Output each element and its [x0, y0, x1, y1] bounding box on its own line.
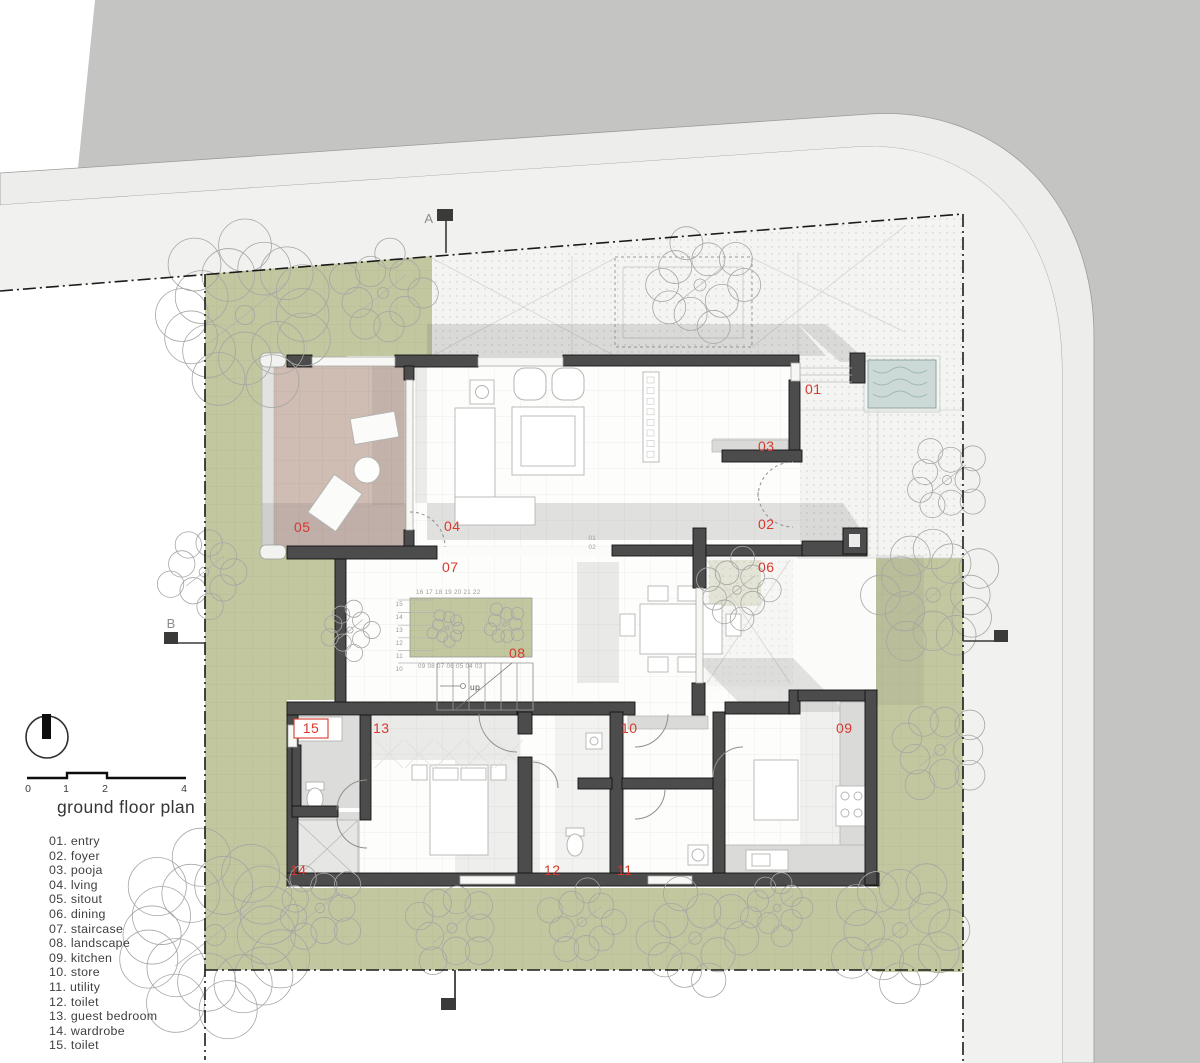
room-label-toilet15: 15: [303, 720, 320, 736]
stair-num-l6: 10: [396, 666, 404, 673]
room-label-store: 10: [621, 720, 638, 736]
legend-item: 01. entry: [49, 834, 278, 849]
legend-item: 09. kitchen: [49, 951, 278, 966]
legend-item: 04. lving: [49, 878, 278, 893]
room-label-dining: 06: [758, 559, 775, 575]
stair-numbers-bottom: 09 08 07 06 05 04 03: [418, 663, 483, 670]
stair-num-l3: 13: [396, 627, 404, 634]
section-a-bottom-flag-icon: [441, 998, 456, 1010]
scale-bar: 0 1 2 4: [25, 773, 187, 795]
scale-tick-2: 2: [102, 783, 108, 795]
legend-list: 01. entry02. foyer03. pooja04. lving05. …: [49, 834, 278, 1053]
legend-item: 10. store: [49, 965, 278, 980]
stair-num-l5: 11: [396, 653, 403, 660]
floor-plan-sheet: A B 01 02 03 04 05 06 07 08 09 10 11 12 …: [0, 0, 1200, 1063]
section-b-flag-icon: [164, 632, 178, 644]
legend-item: 13. guest bedroom: [49, 1009, 278, 1024]
step-label-1: 01: [589, 535, 597, 542]
section-a-flag-icon: [437, 209, 453, 221]
section-b-label: B: [167, 616, 176, 631]
room-label-stair: 07: [442, 559, 459, 575]
north-arrow-icon: [26, 714, 68, 758]
section-b-right-flag-icon: [994, 630, 1008, 642]
legend-item: 14. wardrobe: [49, 1024, 278, 1039]
plan-title: ground floor plan: [57, 797, 278, 818]
room-label-sitout: 05: [294, 519, 311, 535]
room-label-entry: 01: [805, 381, 822, 397]
legend-item: 15. toilet: [49, 1038, 278, 1053]
room-label-kitchen: 09: [836, 720, 853, 736]
legend-item: 02. foyer: [49, 849, 278, 864]
scale-tick-0: 0: [25, 783, 31, 795]
section-a-label: A: [424, 211, 433, 226]
legend-item: 12. toilet: [49, 995, 278, 1010]
room-label-living: 04: [444, 518, 461, 534]
stair-num-l4: 12: [396, 640, 404, 647]
legend-item: 08. landscape: [49, 936, 278, 951]
legend-item: 11. utility: [49, 980, 278, 995]
stair-up-label: up: [470, 682, 480, 692]
stair-numbers-top: 16 17 18 19 20 21 22: [416, 589, 481, 596]
stair-num-l2: 14: [396, 614, 404, 621]
stair-num-l1: 15: [396, 601, 404, 608]
room-label-guestbed: 13: [373, 720, 390, 736]
scale-tick-1: 1: [63, 783, 69, 795]
room-label-pooja: 03: [758, 438, 775, 454]
room-label-foyer: 02: [758, 516, 775, 532]
room-label-wardrobe: 14: [290, 862, 307, 878]
scale-tick-4: 4: [181, 783, 187, 795]
water-feature: [864, 356, 940, 412]
legend-item: 07. staircase: [49, 922, 278, 937]
room-label-utility: 11: [617, 862, 633, 878]
step-label-2: 02: [589, 544, 597, 551]
legend-item: 03. pooja: [49, 863, 278, 878]
legend: ground floor plan 01. entry02. foyer03. …: [48, 797, 278, 1053]
room-label-toilet12: 12: [544, 862, 561, 878]
room-label-landscape: 08: [509, 645, 526, 661]
legend-item: 06. dining: [49, 907, 278, 922]
legend-item: 05. sitout: [49, 892, 278, 907]
